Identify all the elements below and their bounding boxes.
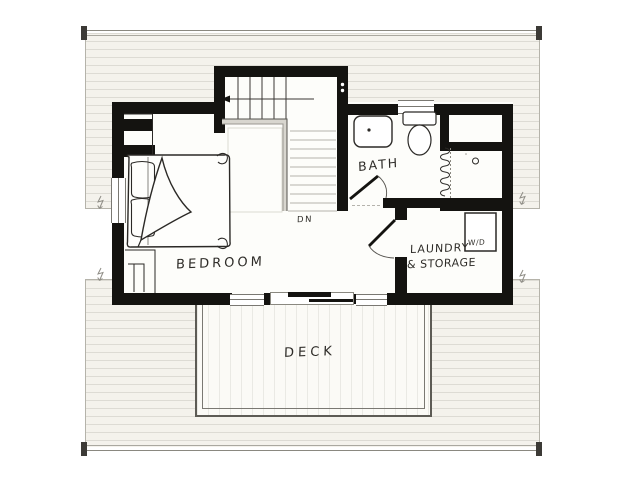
fascia-top-line-2 (85, 35, 538, 36)
window-south-1 (230, 294, 264, 306)
wall-laundry-west-lower (395, 257, 407, 305)
label-laundry-line1: LAUNDRY (410, 241, 470, 256)
fascia-bottom-line-2 (85, 450, 538, 451)
wall-closet-south (440, 142, 510, 151)
fascia-top-cap-right (536, 26, 542, 40)
label-stairs-down: DN (297, 215, 313, 226)
sliding-door-panel-outer (288, 292, 331, 297)
sliding-door-panel-inner (309, 299, 353, 302)
wall-laundry-north (440, 198, 504, 211)
wall-closet-stub-a (124, 119, 153, 131)
sliding-door (270, 292, 354, 305)
wall-stair-north (214, 66, 348, 77)
fascia-bottom-cap-left (81, 442, 87, 456)
floorplan-canvas: BEDROOM BATH LAUNDRY & STORAGE W/D DN DE… (0, 0, 640, 480)
label-washer-dryer: W/D (468, 238, 486, 248)
label-deck: DECK (284, 344, 336, 361)
window-bath-north (398, 100, 434, 114)
wall-laundry-west-upper (395, 208, 407, 220)
wall-bedroom-north (112, 102, 216, 114)
fascia-top-cap-left (81, 26, 87, 40)
window-south-2 (356, 294, 387, 306)
wall-bath-north (348, 104, 398, 115)
window-west (111, 178, 126, 223)
deck-area (195, 305, 432, 417)
wall-stair-east (337, 66, 348, 211)
label-laundry-line2: & STORAGE (407, 256, 476, 271)
wall-stair-west (214, 66, 225, 133)
wall-bedroom-west-upper (112, 102, 124, 178)
wall-closet-stub-b (124, 145, 155, 157)
wall-bath-south (383, 198, 443, 208)
fascia-bottom-line-1 (85, 445, 538, 446)
fascia-top-line-1 (85, 30, 538, 31)
label-bedroom: BEDROOM (176, 254, 265, 272)
fascia-bottom-cap-right (536, 442, 542, 456)
wall-south-left (112, 293, 232, 305)
